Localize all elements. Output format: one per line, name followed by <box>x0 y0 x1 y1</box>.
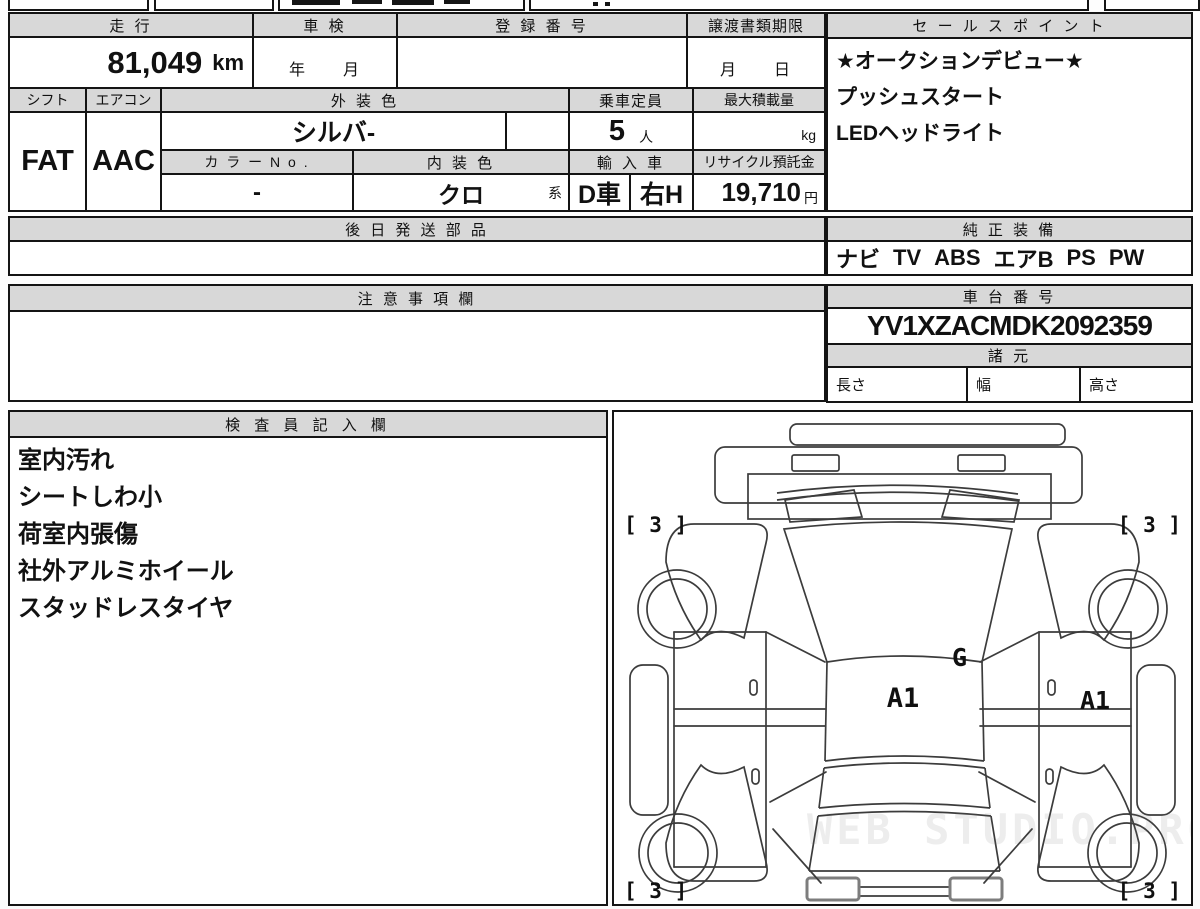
capacity-header: 乗車定員 <box>568 87 694 113</box>
interior-color-header: 内 装 色 <box>352 149 570 175</box>
mileage-unit: km <box>212 50 244 76</box>
rocker-right <box>1137 665 1175 815</box>
shaken-header: 車 検 <box>252 12 398 38</box>
registration-header: 登 録 番 号 <box>396 12 688 38</box>
rocker-left <box>630 665 668 815</box>
spec-length-label: 長さ <box>836 374 866 395</box>
color-no-value: - <box>160 173 354 212</box>
steering-value: 右H <box>629 173 694 212</box>
cutoff-box <box>1104 0 1200 11</box>
chassis-header: 車 台 番 号 <box>826 284 1193 309</box>
corner-mark-top-right: [ 3 ] <box>1118 513 1181 537</box>
interior-color-suffix: 系 <box>548 183 562 203</box>
inspector-line: 室内汚れ <box>18 442 598 479</box>
sales-point-line: ★オークションデビュー★ <box>836 44 1183 80</box>
windshield <box>784 522 1012 662</box>
registration-value <box>396 36 688 89</box>
import-header: 輸 入 車 <box>568 149 694 175</box>
front-mask <box>715 447 1082 503</box>
corner-mark-bottom-right: [ 3 ] <box>1118 879 1181 903</box>
spec-height-label: 高さ <box>1089 374 1119 395</box>
aircon-header: エアコン <box>85 87 162 113</box>
inspector-line: 社外アルミホイール <box>18 553 598 590</box>
notes-header: 注 意 事 項 欄 <box>8 284 826 312</box>
import-type-value: D車 <box>568 173 631 212</box>
car-diagram-panel: WEB STUDIO.PRO [ 3 ] [ 3 ] [ 3 ] [ 3 ] G… <box>612 410 1193 906</box>
sales-point-line: LEDヘッドライト <box>836 116 1183 152</box>
cutoff-box <box>529 0 1089 11</box>
recycle-unit: 円 <box>804 188 818 208</box>
front-bumper-strip <box>790 424 1065 445</box>
equipment-item: TV <box>893 245 921 271</box>
transfer-placeholder: 月 日 <box>720 56 792 80</box>
recycle-value: 19,710 円 <box>692 173 826 212</box>
inspector-line: シートしわ小 <box>18 479 598 516</box>
cutoff-box <box>8 0 149 11</box>
equipment-item: PS <box>1066 245 1095 271</box>
equipment-content: ナビ TV ABS エアB PS PW <box>826 240 1193 276</box>
headlight-left <box>785 490 862 522</box>
damage-label-g: G <box>952 643 967 672</box>
transfer-header: 譲渡書類期限 <box>686 12 826 38</box>
inspector-header: 検 査 員 記 入 欄 <box>8 410 608 438</box>
inspector-line: スタッドレスタイヤ <box>18 590 598 627</box>
spec-length-cell: 長さ <box>826 366 968 403</box>
rear-bumper-tab-right <box>950 878 1002 900</box>
payload-header: 最大積載量 <box>692 87 826 113</box>
damage-label-a1-center: A1 <box>887 683 920 714</box>
exterior-color-value: シルバ- <box>160 111 507 151</box>
equipment-header: 純 正 装 備 <box>826 216 1193 242</box>
inspector-line: 荷室内張傷 <box>18 516 598 553</box>
shift-header: シフト <box>8 87 87 113</box>
sales-point-line: プッシュスタート <box>836 80 1183 116</box>
interior-color-name: クロ <box>438 176 484 210</box>
auction-sheet: 走 行 車 検 登 録 番 号 譲渡書類期限 81,049 km 年 月 月 日… <box>0 0 1200 900</box>
spec-width-label: 幅 <box>976 374 991 395</box>
equipment-item: ナビ <box>836 242 880 274</box>
equipment-item: エアB <box>994 242 1054 274</box>
equipment-item: PW <box>1109 245 1144 271</box>
spec-width-cell: 幅 <box>966 366 1081 403</box>
exterior-color-header: 外 装 色 <box>160 87 570 113</box>
recycle-amount: 19,710 <box>721 177 801 208</box>
sales-points-content: ★オークションデビュー★ プッシュスタート LEDヘッドライト <box>826 37 1193 212</box>
payload-value: kg <box>692 111 826 151</box>
rear-bumper-tab-left <box>807 878 859 900</box>
later-parts-header: 後 日 発 送 部 品 <box>8 216 826 242</box>
car-diagram: WEB STUDIO.PRO [ 3 ] [ 3 ] [ 3 ] [ 3 ] G… <box>614 412 1191 904</box>
exterior-color-extra <box>505 111 570 151</box>
cutoff-text-box <box>278 0 525 11</box>
shift-value: FAT <box>8 111 87 212</box>
equipment-item: ABS <box>934 245 980 271</box>
mileage-number: 81,049 <box>107 45 202 81</box>
wheel-front-right <box>1089 570 1167 648</box>
sales-points-header: セ ー ル ス ポ イ ン ト <box>826 12 1193 39</box>
damage-label-a1-right: A1 <box>1080 686 1110 715</box>
capacity-value: 5 人 <box>568 111 694 151</box>
shaken-value: 年 月 <box>252 36 398 89</box>
corner-mark-bottom-left: [ 3 ] <box>624 879 687 903</box>
watermark: WEB STUDIO.PRO <box>807 805 1191 854</box>
specs-header: 諸 元 <box>826 343 1193 368</box>
capacity-unit: 人 <box>639 127 653 147</box>
shaken-placeholder: 年 月 <box>289 56 361 80</box>
color-no-header: カ ラ ー N o . <box>160 149 354 175</box>
notes-content <box>8 310 826 402</box>
cutoff-box <box>154 0 274 11</box>
capacity-number: 5 <box>609 115 625 148</box>
later-parts-content <box>8 240 826 276</box>
aircon-value: AAC <box>85 111 162 212</box>
chassis-number: YV1XZACMDK2092359 <box>826 307 1193 345</box>
wheel-front-left <box>638 570 716 648</box>
spec-height-cell: 高さ <box>1079 366 1193 403</box>
payload-unit: kg <box>801 127 816 143</box>
inspector-content: 室内汚れ シートしわ小 荷室内張傷 社外アルミホイール スタッドレスタイヤ <box>8 436 608 906</box>
transfer-value: 月 日 <box>686 36 826 89</box>
corner-mark-top-left: [ 3 ] <box>624 513 687 537</box>
recycle-header: リサイクル預託金 <box>692 149 826 175</box>
side-panels-left <box>674 632 826 883</box>
mileage-header: 走 行 <box>8 12 254 38</box>
mileage-value: 81,049 km <box>8 36 254 89</box>
interior-color-value: クロ 系 <box>352 173 570 212</box>
